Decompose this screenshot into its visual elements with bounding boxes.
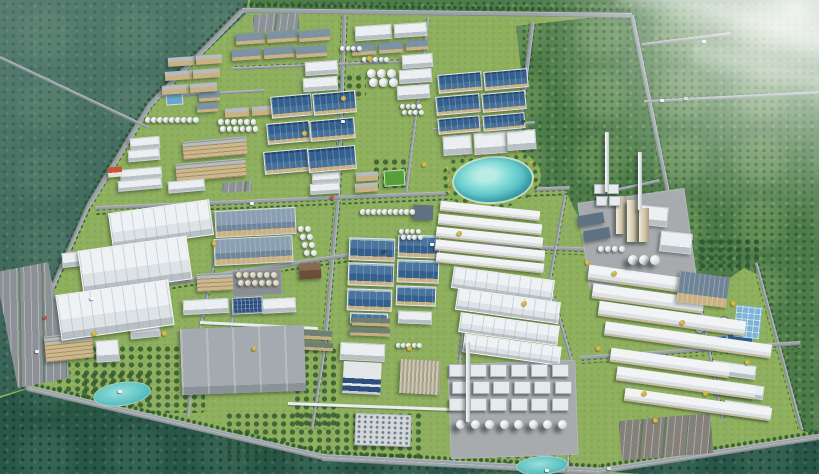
panel-roof-building — [676, 271, 729, 308]
storage-tank — [311, 250, 317, 256]
gabled-building — [299, 262, 322, 279]
car — [35, 350, 39, 353]
autumn-tree — [407, 346, 412, 351]
storage-tank — [244, 119, 250, 125]
warehouse-blue-roof — [437, 71, 482, 94]
storage-tank — [367, 69, 376, 78]
factory-tan — [190, 82, 218, 93]
autumn-tree — [731, 301, 736, 306]
autumn-tree — [367, 56, 372, 61]
factory-tan — [165, 70, 193, 81]
office-building — [118, 177, 163, 192]
storage-tank — [373, 57, 378, 62]
factory-tan — [196, 54, 223, 65]
shed-dark-roof — [352, 317, 390, 326]
substation — [354, 413, 411, 447]
car — [607, 467, 611, 470]
car — [118, 390, 122, 393]
storage-tank — [412, 235, 417, 240]
storage-tank — [411, 104, 416, 109]
storage-tank — [193, 117, 199, 123]
storage-tank — [543, 420, 552, 429]
storage-tank — [252, 280, 258, 286]
storage-tank — [418, 235, 423, 240]
storage-tank — [236, 272, 242, 278]
factory-tan — [168, 56, 195, 67]
storage-tank — [417, 104, 422, 109]
storage-tank — [407, 235, 412, 240]
storage-tank — [220, 126, 226, 132]
warehouse-blue-roof — [309, 117, 356, 142]
storage-tank — [257, 272, 263, 278]
storage-tank — [251, 119, 257, 125]
storage-tank — [357, 46, 362, 51]
autumn-tree — [585, 260, 590, 265]
workshop-blue-roof — [349, 237, 396, 262]
autumn-tree — [522, 301, 527, 306]
storage-tank — [379, 57, 384, 62]
shed-dark-roof — [350, 327, 390, 336]
autumn-tree — [162, 331, 167, 336]
storage-tank — [419, 110, 424, 115]
storage-tank — [300, 234, 306, 240]
autumn-tree — [680, 320, 685, 325]
industrial-park-aerial-view — [0, 0, 819, 474]
plant-structure — [534, 381, 551, 394]
car — [250, 202, 254, 205]
shed-slate-roof — [379, 41, 404, 54]
office-building — [402, 53, 434, 69]
autumn-tree — [252, 346, 257, 351]
office-building — [397, 84, 431, 100]
shed-slate-roof — [406, 39, 429, 51]
factory-hall — [213, 235, 293, 266]
autumn-tree — [212, 241, 217, 246]
workshop-blue-roof — [397, 259, 440, 283]
car — [430, 243, 434, 246]
office-tan — [175, 158, 246, 182]
office-building — [399, 68, 433, 84]
storage-tank — [384, 57, 389, 62]
storage-tank — [389, 78, 398, 87]
workshop-blue-roof — [348, 262, 395, 287]
plant-structure — [555, 381, 572, 394]
storage-tank — [369, 78, 378, 87]
storage-tank — [243, 272, 249, 278]
storage-tank — [399, 229, 404, 234]
car — [341, 120, 345, 123]
storage-tank — [387, 69, 396, 78]
warehouse-blue-roof — [437, 115, 480, 135]
office-building — [398, 310, 432, 324]
storage-tank — [259, 280, 265, 286]
autumn-tree — [596, 346, 601, 351]
office-tan — [197, 272, 234, 292]
storage-tank — [416, 229, 421, 234]
storage-tank — [529, 420, 538, 429]
storage-tank — [402, 110, 407, 115]
storage-tank — [650, 255, 660, 265]
office-building — [310, 182, 341, 195]
office-building — [168, 178, 206, 193]
autumn-tree — [92, 331, 97, 336]
car — [330, 196, 334, 199]
storage-tank — [401, 235, 406, 240]
factory-tan — [193, 68, 221, 79]
autumn-tree — [341, 96, 346, 101]
storage-tank — [231, 119, 237, 125]
storage-tank — [605, 246, 611, 252]
storage-tank — [417, 343, 422, 348]
plant-structure — [470, 398, 487, 411]
car — [545, 469, 549, 472]
storage-tank — [405, 229, 410, 234]
warehouse-gray — [180, 325, 306, 395]
storage-tank — [598, 246, 604, 252]
factory-tan — [355, 182, 379, 193]
plant-structure — [449, 398, 466, 411]
plant-structure — [490, 364, 507, 377]
autumn-tree — [642, 391, 647, 396]
plant-structure — [490, 398, 507, 411]
plant-structure — [531, 364, 548, 377]
storage-tank — [245, 280, 251, 286]
striped-building — [399, 359, 441, 395]
storage-tank — [227, 126, 233, 132]
storage-tank — [628, 255, 638, 265]
warehouse-blue-roof — [312, 90, 357, 116]
storage-tank — [266, 280, 272, 286]
plant-structure — [449, 364, 466, 377]
plant-structure — [552, 398, 569, 411]
office-building — [473, 131, 507, 155]
office-tan — [182, 136, 247, 160]
warehouse-blue-roof — [307, 145, 357, 173]
workshop-blue-roof — [396, 285, 437, 306]
storage-tank — [500, 420, 509, 429]
storage-tank — [346, 46, 351, 51]
warehouse-blue-roof — [435, 93, 480, 116]
storage-tank — [240, 126, 246, 132]
office-building — [303, 76, 339, 92]
storage-tank — [406, 104, 411, 109]
plant-structure — [552, 364, 569, 377]
shed-slate-roof — [299, 29, 331, 42]
storage-tank — [233, 126, 239, 132]
storage-tank — [302, 242, 308, 248]
storage-tank — [238, 280, 244, 286]
plant-building — [342, 361, 382, 395]
autumn-tree — [703, 391, 708, 396]
office-building — [95, 339, 119, 363]
storage-tank — [471, 420, 480, 429]
autumn-tree — [422, 162, 427, 167]
warehouse-blue-roof — [263, 148, 310, 175]
storage-tank — [264, 272, 270, 278]
storage-tank — [485, 420, 494, 429]
storage-tank — [413, 110, 418, 115]
autumn-tree — [653, 418, 658, 423]
storage-tank — [377, 69, 386, 78]
plant-structure — [531, 398, 548, 411]
storage-tank — [271, 272, 277, 278]
factory-tan — [225, 107, 250, 118]
car — [382, 250, 386, 253]
storage-tank — [307, 234, 313, 240]
factory-tan — [356, 171, 379, 182]
storage-tank — [305, 226, 311, 232]
storage-tank — [456, 420, 465, 429]
storage-tank — [558, 420, 567, 429]
shed-slate-roof — [197, 102, 219, 112]
storage-tank — [410, 209, 416, 215]
storage-tank — [360, 209, 366, 215]
storage-tank — [619, 246, 625, 252]
storage-tank — [238, 119, 244, 125]
storage-tank — [412, 343, 417, 348]
office-building — [183, 298, 230, 315]
storage-tank — [400, 104, 405, 109]
shed-slate-roof — [236, 32, 266, 45]
storage-tank — [639, 255, 649, 265]
office-building — [394, 22, 428, 38]
storage-tank — [309, 242, 315, 248]
parking-lot — [222, 181, 253, 193]
storage-tank — [250, 272, 256, 278]
autumn-tree — [302, 131, 307, 136]
storage-tank — [382, 209, 388, 215]
shed-slate-roof — [296, 45, 328, 58]
red-utility-building — [108, 166, 123, 177]
chimney-stack — [466, 342, 470, 422]
parking-lot — [618, 413, 713, 461]
solar-roof-building — [232, 296, 264, 315]
storage-tank — [514, 420, 523, 429]
plant-structure — [473, 381, 490, 394]
storage-tank — [340, 46, 345, 51]
car — [43, 316, 47, 319]
office-building — [355, 24, 393, 42]
dark-shed — [413, 205, 434, 221]
storage-tank — [393, 209, 399, 215]
sports-court — [383, 169, 405, 186]
autumn-tree — [612, 271, 617, 276]
storage-tank — [304, 250, 310, 256]
storage-tank — [408, 110, 413, 115]
shed-slate-roof — [264, 46, 296, 59]
storage-tank — [273, 280, 279, 286]
office-building — [305, 60, 339, 76]
plant-structure — [514, 381, 531, 394]
storage-tank — [404, 209, 410, 215]
office-building — [262, 297, 297, 314]
shed-slate-roof — [232, 48, 262, 61]
storage-tank — [225, 119, 231, 125]
storage-tank — [371, 209, 377, 215]
factory-hall — [214, 207, 296, 238]
storage-tank — [410, 229, 415, 234]
warehouse-blue-roof — [270, 93, 313, 118]
storage-tank — [246, 126, 252, 132]
office-building — [340, 342, 386, 362]
office-building — [442, 134, 472, 156]
storage-tank — [298, 226, 304, 232]
plant-structure — [511, 364, 528, 377]
shed-slate-roof — [267, 30, 299, 43]
plant-structure — [470, 364, 487, 377]
autumn-tree — [745, 360, 750, 365]
workshop-blue-roof — [347, 288, 393, 312]
plant-structure — [511, 398, 528, 411]
factory-tan — [162, 84, 190, 95]
storage-tank — [253, 126, 259, 132]
storage-tank — [351, 46, 356, 51]
autumn-tree — [457, 231, 462, 236]
office-building — [128, 148, 161, 163]
storage-tank — [379, 78, 388, 87]
storage-tank — [218, 119, 224, 125]
car — [90, 297, 94, 300]
plant-structure — [493, 381, 510, 394]
storage-tank — [612, 246, 618, 252]
